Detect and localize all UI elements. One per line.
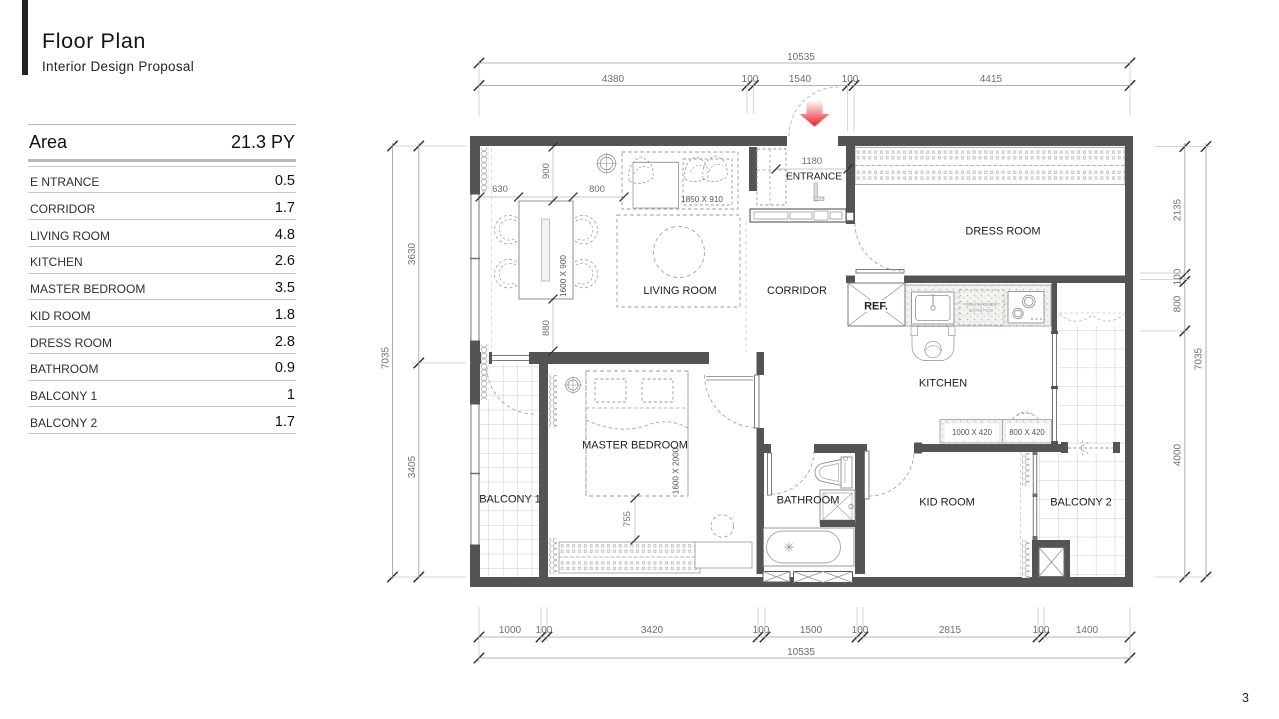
svg-text:100: 100 xyxy=(852,625,869,636)
svg-text:630: 630 xyxy=(492,184,508,195)
svg-text:KID ROOM: KID ROOM xyxy=(919,497,975,509)
svg-text:1500: 1500 xyxy=(800,625,823,636)
svg-text:1180: 1180 xyxy=(802,156,822,167)
svg-text:1400: 1400 xyxy=(1076,625,1099,636)
svg-text:100: 100 xyxy=(742,74,759,85)
svg-text:900: 900 xyxy=(541,163,552,179)
svg-text:4415: 4415 xyxy=(980,74,1003,85)
svg-text:ENTRANCE: ENTRANCE xyxy=(786,172,842,183)
svg-text:DRESS ROOM: DRESS ROOM xyxy=(965,226,1040,238)
svg-text:755: 755 xyxy=(622,511,633,527)
svg-text:4000: 4000 xyxy=(1173,443,1184,466)
svg-text:3420: 3420 xyxy=(641,625,664,636)
svg-text:REF.: REF. xyxy=(864,301,888,313)
svg-text:560*567*810: 560*567*810 xyxy=(969,308,994,313)
svg-text:1600 X 2000: 1600 X 2000 xyxy=(672,447,681,494)
svg-text:880: 880 xyxy=(541,320,552,336)
svg-text:10535: 10535 xyxy=(787,52,815,63)
svg-text:3630: 3630 xyxy=(407,242,418,265)
svg-text:800: 800 xyxy=(1173,295,1184,312)
svg-text:KITCHEN: KITCHEN xyxy=(919,378,967,390)
svg-text:BALCONY 1: BALCONY 1 xyxy=(479,494,541,506)
svg-text:1540: 1540 xyxy=(789,74,812,85)
svg-text:BALCONY 2: BALCONY 2 xyxy=(1050,497,1112,509)
svg-text:100: 100 xyxy=(536,625,553,636)
svg-text:2135: 2135 xyxy=(1173,198,1184,221)
svg-text:CORRIDOR: CORRIDOR xyxy=(767,285,827,297)
svg-text:MASTER BEDROOM: MASTER BEDROOM xyxy=(582,440,688,452)
svg-text:7035: 7035 xyxy=(381,346,392,369)
svg-text:1850 X 910: 1850 X 910 xyxy=(681,195,723,204)
svg-text:3405: 3405 xyxy=(407,455,418,478)
svg-text:100: 100 xyxy=(842,74,859,85)
svg-text:7035: 7035 xyxy=(1194,347,1205,370)
svg-text:4380: 4380 xyxy=(602,74,625,85)
svg-text:100: 100 xyxy=(753,625,770,636)
svg-text:2815: 2815 xyxy=(939,625,962,636)
svg-text:BATHROOM: BATHROOM xyxy=(777,495,840,507)
svg-text:100: 100 xyxy=(1173,268,1184,285)
svg-text:800 X 420: 800 X 420 xyxy=(1009,428,1045,437)
svg-text:1000 X 420: 1000 X 420 xyxy=(952,428,993,437)
svg-text:100: 100 xyxy=(1033,625,1050,636)
svg-text:LIVING ROOM: LIVING ROOM xyxy=(643,285,716,297)
svg-text:1000: 1000 xyxy=(499,625,522,636)
svg-text:DISH WASHER: DISH WASHER xyxy=(965,302,998,307)
svg-text:10535: 10535 xyxy=(787,647,815,658)
svg-text:1600 X 900: 1600 X 900 xyxy=(559,255,568,297)
svg-text:800: 800 xyxy=(589,184,605,195)
